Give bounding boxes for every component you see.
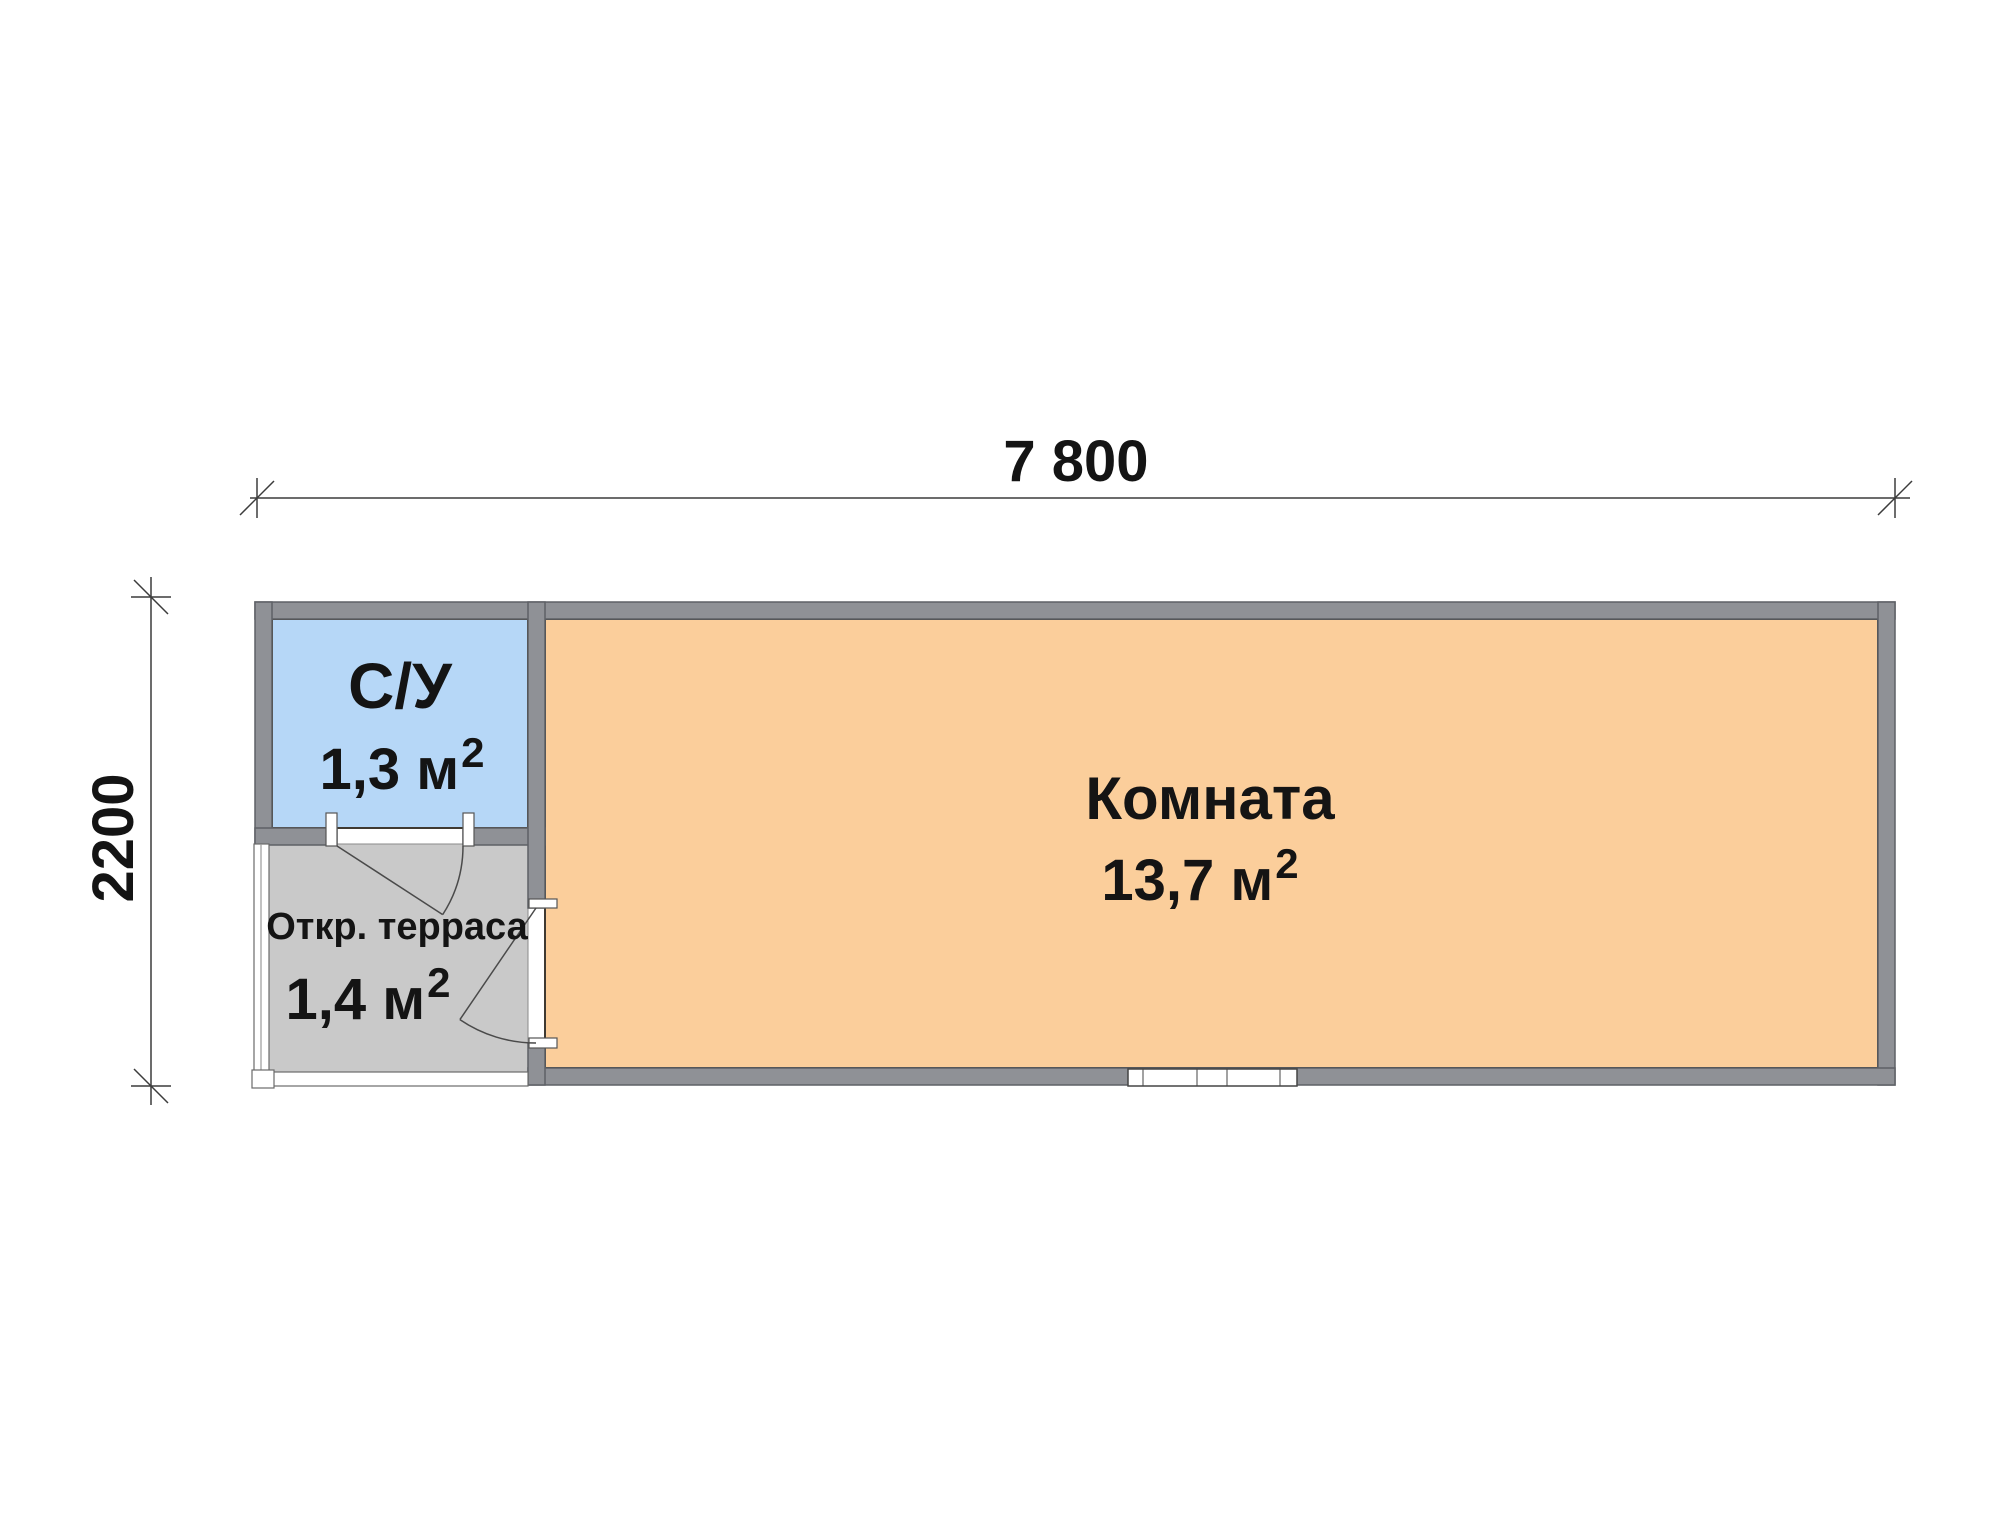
terrace-corner-post	[252, 1070, 274, 1088]
floor-plan-canvas: 7 800 2200 С/У 1,3 м2 Комната 13,7 м2 От…	[0, 0, 2000, 1538]
wall-divider-lower	[528, 1043, 545, 1085]
dimension-width-label: 7 800	[1003, 433, 1148, 491]
window-frame	[1128, 1069, 1297, 1086]
terrace-area-value: 1,4 м	[285, 971, 425, 1029]
bathroom-door-jamb-left	[326, 813, 337, 846]
dimension-height-label: 2200	[85, 773, 143, 902]
wall-top	[255, 602, 1895, 619]
terrace-label: Откр. терраса	[266, 908, 528, 946]
bathroom-door-jamb-right	[463, 813, 474, 846]
main-room-area: 13,7 м2	[1101, 852, 1298, 910]
wall-right	[1878, 602, 1895, 1085]
terrace-area-sup: 2	[427, 962, 450, 1004]
room-door-jamb-top	[529, 899, 557, 908]
main-room-label: Комната	[1085, 769, 1334, 829]
floor-plan-drawing	[0, 0, 2000, 1538]
window	[1128, 1069, 1297, 1086]
bathroom-area-value: 1,3 м	[319, 741, 459, 799]
main-room-floor	[545, 619, 1878, 1068]
wall-bathroom-bottom-left	[255, 828, 337, 845]
bathroom-label: С/У	[348, 654, 452, 718]
main-room-area-sup: 2	[1275, 843, 1298, 885]
terrace-floor	[269, 844, 528, 1072]
wall-divider-upper	[528, 602, 545, 908]
bathroom-area: 1,3 м2	[319, 741, 484, 799]
bathroom-area-sup: 2	[461, 732, 484, 774]
main-room-area-value: 13,7 м	[1101, 852, 1273, 910]
wall-left	[255, 602, 272, 844]
terrace-area: 1,4 м2	[285, 971, 450, 1029]
terrace-edge-bottom	[256, 1072, 528, 1086]
